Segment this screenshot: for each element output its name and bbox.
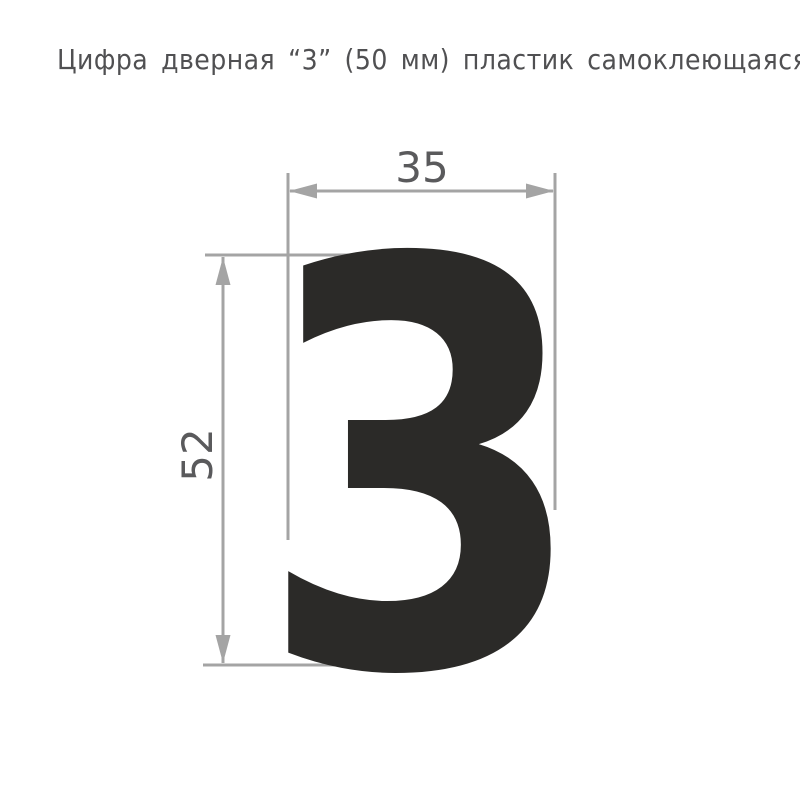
height-arrow-down-icon	[216, 635, 231, 663]
door-digit-text: 3	[256, 145, 588, 799]
door-digit-glyph: 3	[256, 145, 588, 799]
product-drawing-canvas: Цифра дверная “3” (50 мм) пластик самокл…	[0, 0, 800, 800]
dimension-drawing: 35 52 3	[0, 0, 800, 800]
height-arrow-up-icon	[216, 257, 231, 285]
height-value: 52	[173, 428, 222, 481]
